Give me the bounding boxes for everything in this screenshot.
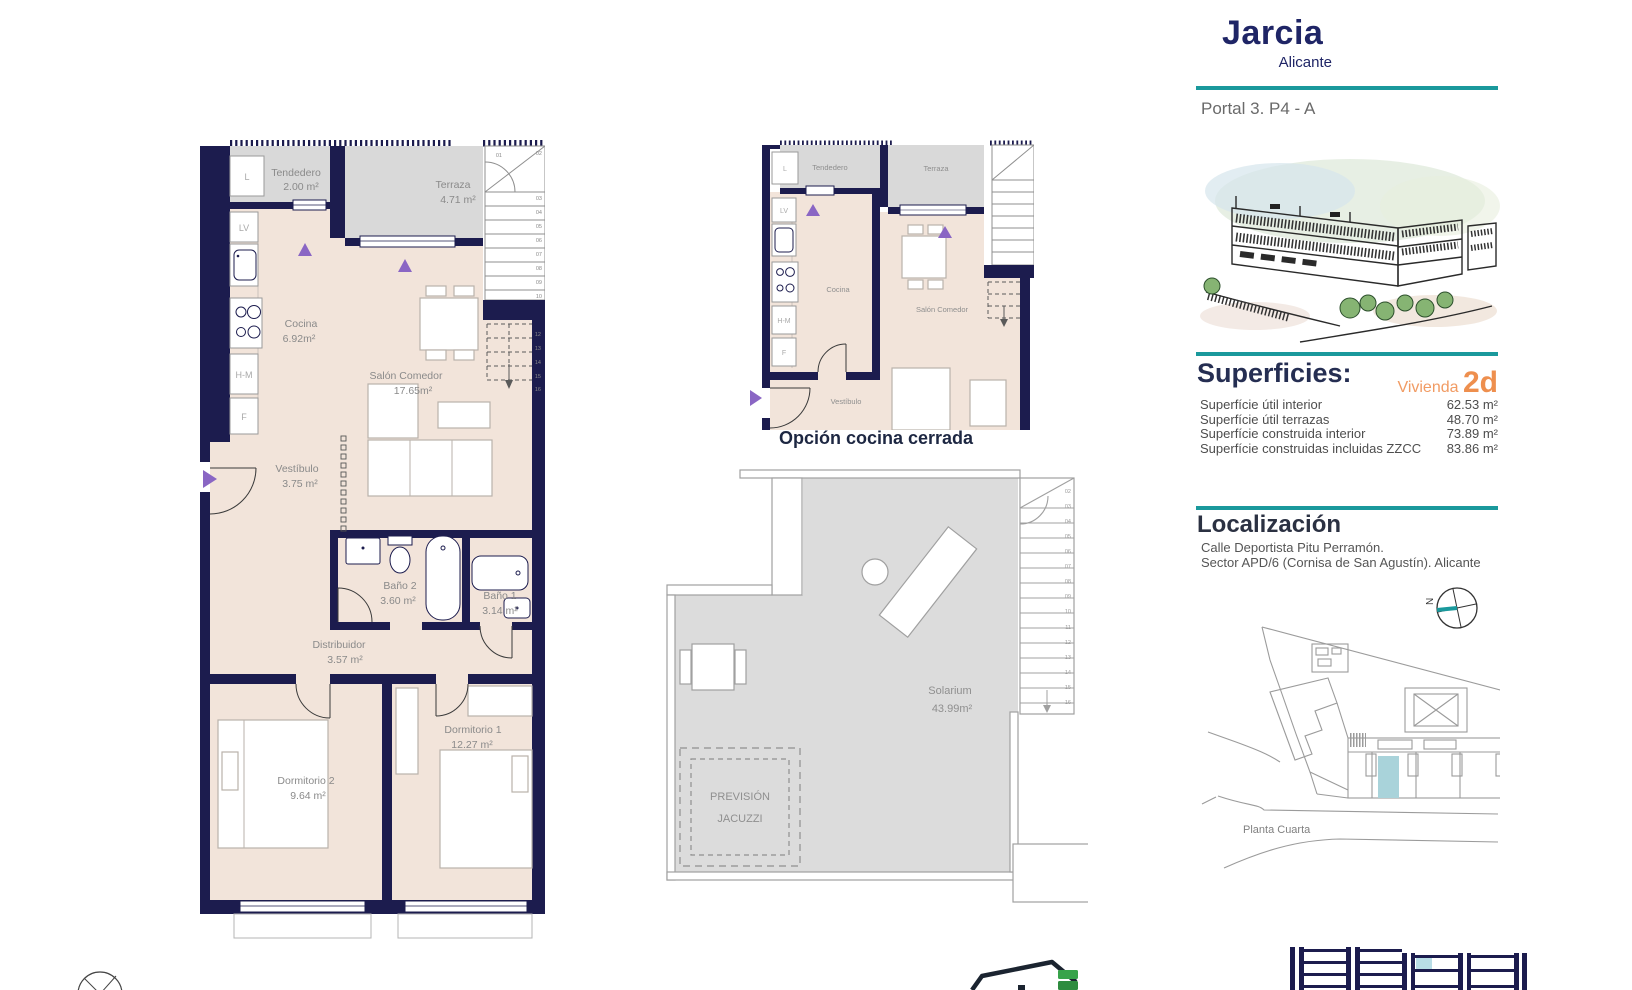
superficies-heading: Superficies: [1197, 358, 1352, 389]
superficie-value: 83.86 m² [1447, 442, 1498, 457]
stair-step-number: 07 [1065, 564, 1071, 570]
jacuzzi-label: JACUZZI [717, 813, 762, 825]
superficie-value: 73.89 m² [1447, 427, 1498, 442]
room-name: Dormitorio 1 [444, 724, 501, 736]
project-title: Jarcia [1222, 14, 1323, 53]
room-name: Vestíbulo [831, 397, 862, 406]
small-plan-caption: Opción cocina cerrada [740, 428, 1012, 449]
room-area: 17.65m² [394, 385, 433, 397]
appliance-label: F [782, 350, 786, 357]
room-name: Vestíbulo [275, 463, 318, 475]
building-sketch [1200, 146, 1500, 346]
balcony-outline [398, 914, 532, 938]
project-city: Alicante [1222, 54, 1332, 71]
stair-step-number: 12 [535, 332, 541, 338]
stair-step-number: 08 [536, 266, 542, 272]
vivienda-label: Vivienda [1397, 379, 1458, 396]
stair-step-number: 08 [1065, 579, 1071, 585]
stair-step-number: 14 [1065, 670, 1071, 676]
room-area: 3.57 m² [327, 654, 363, 666]
jacuzzi-label: PREVISIÓN [710, 790, 770, 803]
closed-kitchen-plan: L LV H-M F Tendedero Terraza Cocina Saló… [742, 140, 1034, 430]
staircase [992, 145, 1034, 265]
appliance-label: L [244, 172, 249, 182]
localizacion-heading: Localización [1197, 511, 1341, 539]
stair-step-number: 05 [1065, 534, 1071, 540]
stair-step-number: 04 [536, 210, 542, 216]
stair-step-number: 13 [1065, 655, 1071, 661]
floor-name-label: Planta Cuarta [1243, 824, 1310, 836]
stair-step-number: 01 [496, 153, 502, 159]
staircase [485, 146, 545, 300]
north-label: N [1425, 598, 1436, 605]
appliance-label: F [241, 412, 247, 422]
room-name: Cocina [826, 285, 850, 294]
appliance-label: L [783, 166, 787, 173]
terraza-floor [888, 145, 984, 207]
room-name: Baño 2 [383, 580, 416, 592]
address-line: Sector APD/6 (Cornisa de San Agustín). A… [1201, 555, 1481, 570]
vivienda-tag: Vivienda 2d [1350, 366, 1498, 400]
compass-icon: N [1425, 588, 1477, 628]
superficie-value: 48.70 m² [1447, 413, 1498, 428]
divider [1196, 86, 1498, 90]
superficie-label: Superfície útil interior [1200, 398, 1322, 413]
stair-step-number: 11 [1065, 625, 1071, 631]
room-name: Solarium [928, 685, 971, 697]
room-name: Salón Comedor [370, 370, 443, 382]
stair-step-number: 03 [1065, 504, 1071, 510]
stair-step-number: 04 [1065, 519, 1071, 525]
room-name: Distribuidor [312, 639, 366, 651]
stair-step-number: 02 [1065, 489, 1071, 495]
stair-step-number: 09 [536, 280, 542, 286]
room-name: Cocina [285, 318, 318, 330]
compass-icon [60, 956, 140, 990]
superficie-label: Superfície construidas incluidas ZZCC [1200, 442, 1421, 457]
stair-step-number: 10 [536, 294, 542, 300]
stair-step-number: 15 [535, 374, 541, 380]
room-name: Tendedero [812, 163, 847, 172]
superficies-table: Superfície útil interior 62.53 m² Superf… [1200, 398, 1498, 456]
superficie-label: Superfície útil terrazas [1200, 413, 1329, 428]
superficie-row: Superfície construidas incluidas ZZCC 83… [1200, 442, 1498, 457]
superficie-row: Superfície útil terrazas 48.70 m² [1200, 413, 1498, 428]
developer-logo-icon [960, 938, 1090, 990]
room-area: 3.75 m² [282, 478, 318, 490]
balcony-outline [234, 914, 371, 938]
vivienda-value: 2d [1463, 366, 1498, 399]
address-line: Calle Deportista Pitu Perramón. [1201, 540, 1481, 555]
stair-step-number: 16 [535, 387, 541, 393]
appliance-label: LV [239, 223, 249, 233]
stair-step-number: 13 [535, 346, 541, 352]
superficie-row: Superfície útil interior 62.53 m² [1200, 398, 1498, 413]
room-area: 3.60 m² [380, 595, 416, 607]
room-name: Terraza [435, 179, 470, 191]
room-name: Salón Comedor [916, 305, 969, 314]
appliance-label: LV [780, 208, 788, 215]
main-floor-plan: L LV H-M F [200, 140, 545, 950]
room-name: Tendedero [271, 167, 321, 179]
room-area: 6.92m² [283, 333, 316, 345]
portal-label: Portal 3. P4 - A [1201, 99, 1315, 119]
stair-step-number: 06 [536, 238, 542, 244]
superficie-row: Superfície construida interior 73.89 m² [1200, 427, 1498, 442]
stair-step-number: 15 [1065, 685, 1071, 691]
stair-step-number: 09 [1065, 594, 1071, 600]
stair-step-number: 06 [1065, 549, 1071, 555]
room-area: 43.99m² [932, 703, 973, 715]
stair-step-number: 03 [536, 196, 542, 202]
room-name: Dormitorio 2 [277, 775, 334, 787]
building-elevation [1288, 945, 1528, 990]
room-area: 3.14 m² [482, 605, 518, 617]
room-area: 9.64 m² [290, 790, 326, 802]
appliance-label: H-M [236, 370, 253, 380]
stair-step-number: 12 [1065, 640, 1071, 646]
highlighted-unit [1416, 957, 1432, 969]
superficie-value: 62.53 m² [1447, 398, 1498, 413]
terraza-floor [345, 146, 483, 238]
stair-step-number: 07 [536, 252, 542, 258]
stair-step-number: 05 [536, 224, 542, 230]
brochure-page: { "header": { "title": "Jarcia", "subtit… [0, 0, 1632, 990]
room-area: 12.27 m² [451, 739, 493, 751]
divider [1196, 506, 1498, 510]
room-area: 2.00 m² [283, 181, 319, 193]
stair-step-number: 14 [535, 360, 541, 366]
room-name: Baño 1 [483, 590, 516, 602]
superficie-label: Superfície construida interior [1200, 427, 1365, 442]
solarium-plan: PREVISIÓN JACUZZI Solarium 43.99m² 02030… [628, 462, 1088, 910]
stair-step-number: 10 [1065, 609, 1071, 615]
highlighted-unit [1378, 756, 1399, 798]
entry-marker-icon [750, 390, 762, 406]
room-area: 4.71 m² [440, 194, 476, 206]
stair-step-number: 16 [1065, 700, 1071, 706]
address: Calle Deportista Pitu Perramón. Sector A… [1201, 540, 1481, 570]
appliance-label: H-M [777, 318, 790, 325]
room-name: Terraza [923, 164, 949, 173]
divider [1196, 352, 1498, 356]
stair-step-number: 02 [536, 151, 542, 157]
